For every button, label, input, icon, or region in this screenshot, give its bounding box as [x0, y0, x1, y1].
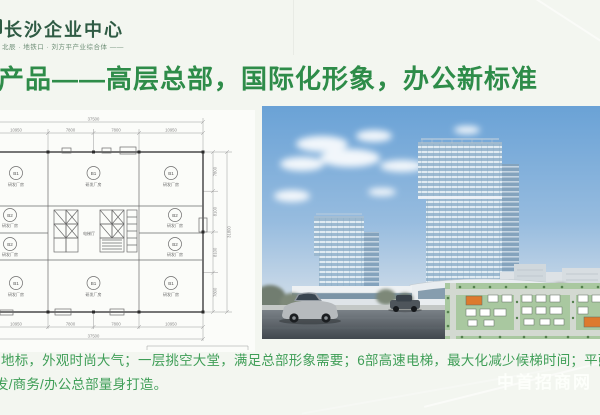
dim-total-right: 31800 — [227, 226, 232, 238]
building-rendering-image — [262, 106, 600, 339]
room-label: 研发厂房 — [8, 291, 24, 297]
room-code: B1 — [91, 281, 97, 286]
logo-tagline: 北辰 · 地铁口 · 刘方平产业综合体 —— — [2, 41, 124, 51]
room-code: B2 — [172, 213, 178, 218]
logo-text: ·长沙企业中心 — [0, 16, 124, 42]
dim-right-1: 7800 — [213, 166, 218, 176]
room-code: B2 — [172, 242, 178, 247]
room-label: 研发厂房 — [2, 251, 18, 257]
room-code: B1 — [168, 171, 174, 176]
room-label: 研发厂房 — [163, 181, 179, 187]
watermark-text: 中首招商网 — [497, 368, 592, 393]
dim-bottom-4: 10950 — [165, 322, 177, 327]
room-label: 研发厂房 — [167, 251, 183, 257]
room-label: 研发厂房 — [167, 222, 183, 228]
dim-bottom-1: 10950 — [10, 322, 22, 327]
room-code: B1 — [13, 171, 19, 176]
dim-top-2: 7800 — [66, 128, 76, 133]
dim-total-top: 37500 — [88, 117, 100, 122]
slide-root: { "slide": { "header": { "logo_text": "·… — [0, 0, 600, 400]
body-text-line-2: 发/商务/办公总部量身打造。 — [0, 373, 167, 393]
dim-total-bottom: 37500 — [88, 334, 100, 339]
room-label: 研发厂房 — [86, 291, 102, 297]
core-label: 电梯厅 — [83, 230, 95, 236]
floor-plan-drawing: 37500 10950 7800 7800 10950 10950 7800 7… — [0, 110, 255, 352]
room-code: B1 — [168, 281, 174, 286]
room-code: B2 — [7, 242, 13, 247]
room-label: 研发厂房 — [86, 181, 102, 187]
dim-right-4: 7800 — [213, 287, 218, 297]
dim-top-3: 7800 — [111, 128, 121, 133]
dim-right-3: 8100 — [213, 247, 218, 257]
room-code: B1 — [91, 171, 97, 176]
room-code: B2 — [7, 213, 13, 218]
site-plan-inset — [445, 283, 600, 339]
room-label: 研发厂房 — [2, 222, 18, 228]
room-code: B1 — [13, 281, 19, 286]
room-label: 研发厂房 — [8, 181, 24, 187]
page-title: 产品——高层总部，国际化形象，办公新标准 — [0, 59, 538, 96]
header-divider — [293, 0, 294, 55]
dim-bottom-3: 7800 — [111, 322, 121, 327]
room-label: 研发厂房 — [163, 291, 179, 297]
dim-top-4: 10950 — [165, 128, 177, 133]
dim-bottom-2: 7800 — [66, 322, 76, 327]
body-text-line-1: 地标，外观时尚大气；一层挑空大堂，满足总部形象需要；6部高速电梯，最大化减少候梯… — [1, 349, 600, 369]
dim-top-1: 10950 — [10, 128, 22, 133]
dim-right-2: 8100 — [213, 206, 218, 216]
